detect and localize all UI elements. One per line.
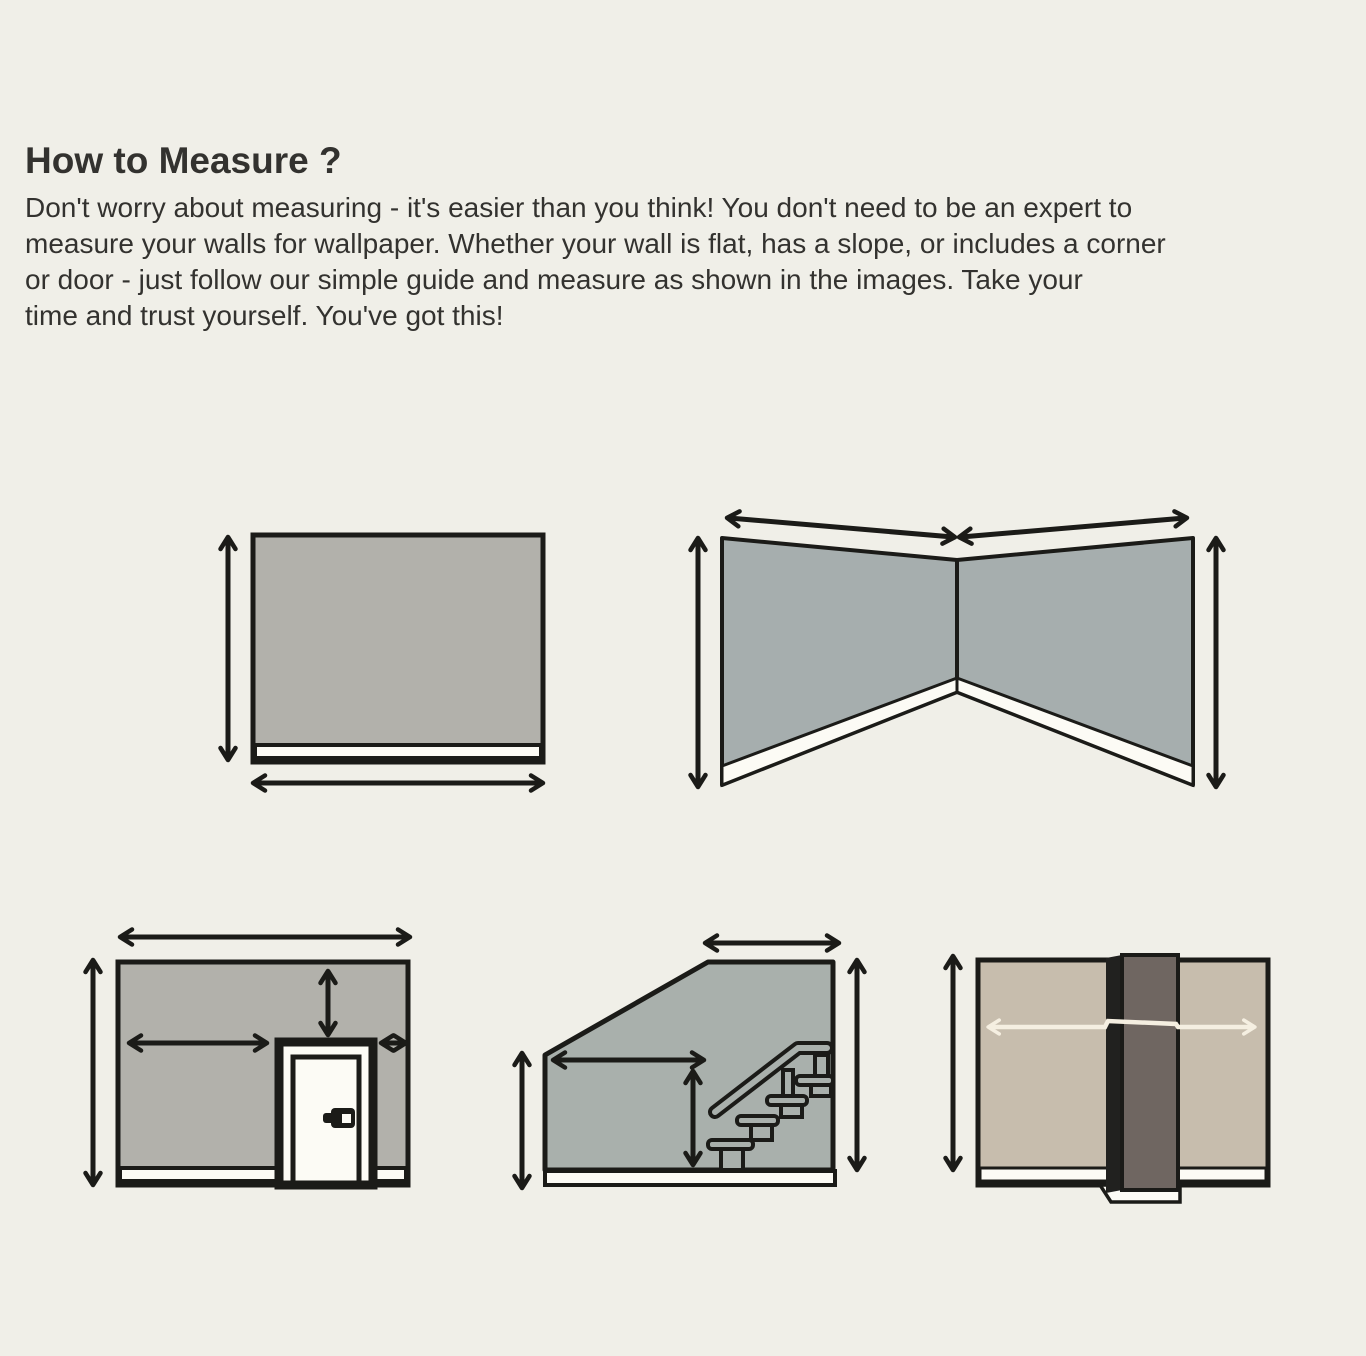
column-face: [1122, 955, 1178, 1190]
staircase-wall-baseboard: [545, 1171, 835, 1185]
left-corner-wall: [722, 538, 957, 785]
wall-with-door-diagram: [65, 905, 435, 1205]
flat-wall-diagram: [195, 495, 575, 815]
page-title: How to Measure ?: [25, 140, 342, 182]
left-baseboard: [980, 1168, 1111, 1181]
staircase-wall: [545, 962, 833, 1170]
intro-line-2: measure your walls for wallpaper. Whethe…: [25, 226, 1166, 262]
intro-line-1: Don't worry about measuring - it's easie…: [25, 190, 1166, 226]
right-corner-wall: [957, 538, 1193, 785]
staircase-wall-diagram: [500, 905, 880, 1205]
right-baseboard: [1174, 1168, 1266, 1181]
flat-wall: [253, 535, 543, 762]
left-wall-section: [978, 960, 1113, 1185]
intro-line-3: or door - just follow our simple guide a…: [25, 262, 1166, 298]
door: [279, 1042, 373, 1185]
column: [1106, 955, 1178, 1193]
intro-paragraph: Don't worry about measuring - it's easie…: [25, 190, 1166, 334]
left-wall-width-arrow: [729, 518, 953, 537]
flat-wall-baseboard: [255, 745, 541, 758]
right-wall-section: [1172, 960, 1268, 1185]
intro-line-4: time and trust yourself. You've got this…: [25, 298, 1166, 334]
measure-guide-page: How to Measure ? Don't worry about measu…: [0, 0, 1366, 1356]
column-shadow-side: [1106, 955, 1122, 1193]
corner-walls-diagram: [650, 470, 1230, 810]
wall-with-column-diagram: [920, 905, 1300, 1215]
right-wall-width-arrow: [961, 518, 1185, 537]
